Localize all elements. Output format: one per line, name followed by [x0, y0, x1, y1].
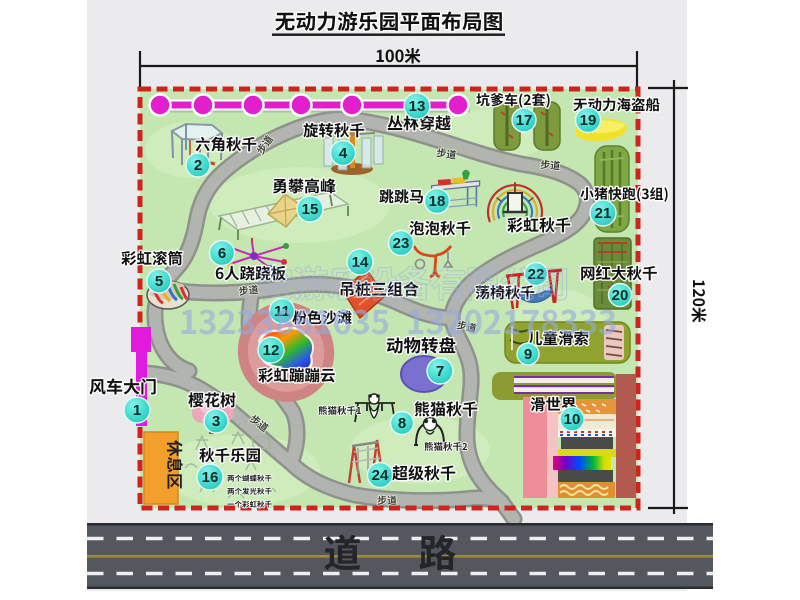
svg-text:17: 17 — [516, 112, 533, 129]
svg-text:8: 8 — [398, 415, 406, 432]
svg-text:5: 5 — [155, 273, 163, 290]
svg-text:18: 18 — [429, 193, 446, 210]
svg-text:19: 19 — [580, 112, 597, 129]
svg-text:9: 9 — [524, 346, 532, 363]
svg-text:3: 3 — [212, 413, 220, 430]
svg-text:20: 20 — [612, 287, 629, 304]
svg-text:24: 24 — [372, 467, 389, 484]
svg-text:10: 10 — [564, 411, 581, 428]
svg-text:21: 21 — [595, 205, 612, 222]
svg-text:23: 23 — [393, 235, 410, 252]
svg-text:1: 1 — [133, 402, 141, 419]
svg-text:4: 4 — [339, 145, 348, 162]
svg-text:12: 12 — [263, 342, 280, 359]
svg-text:7: 7 — [436, 363, 444, 380]
svg-text:13: 13 — [409, 98, 426, 115]
svg-text:15: 15 — [302, 201, 319, 218]
svg-text:16: 16 — [202, 469, 219, 486]
svg-text:2: 2 — [194, 157, 202, 174]
svg-text:6: 6 — [218, 245, 226, 262]
